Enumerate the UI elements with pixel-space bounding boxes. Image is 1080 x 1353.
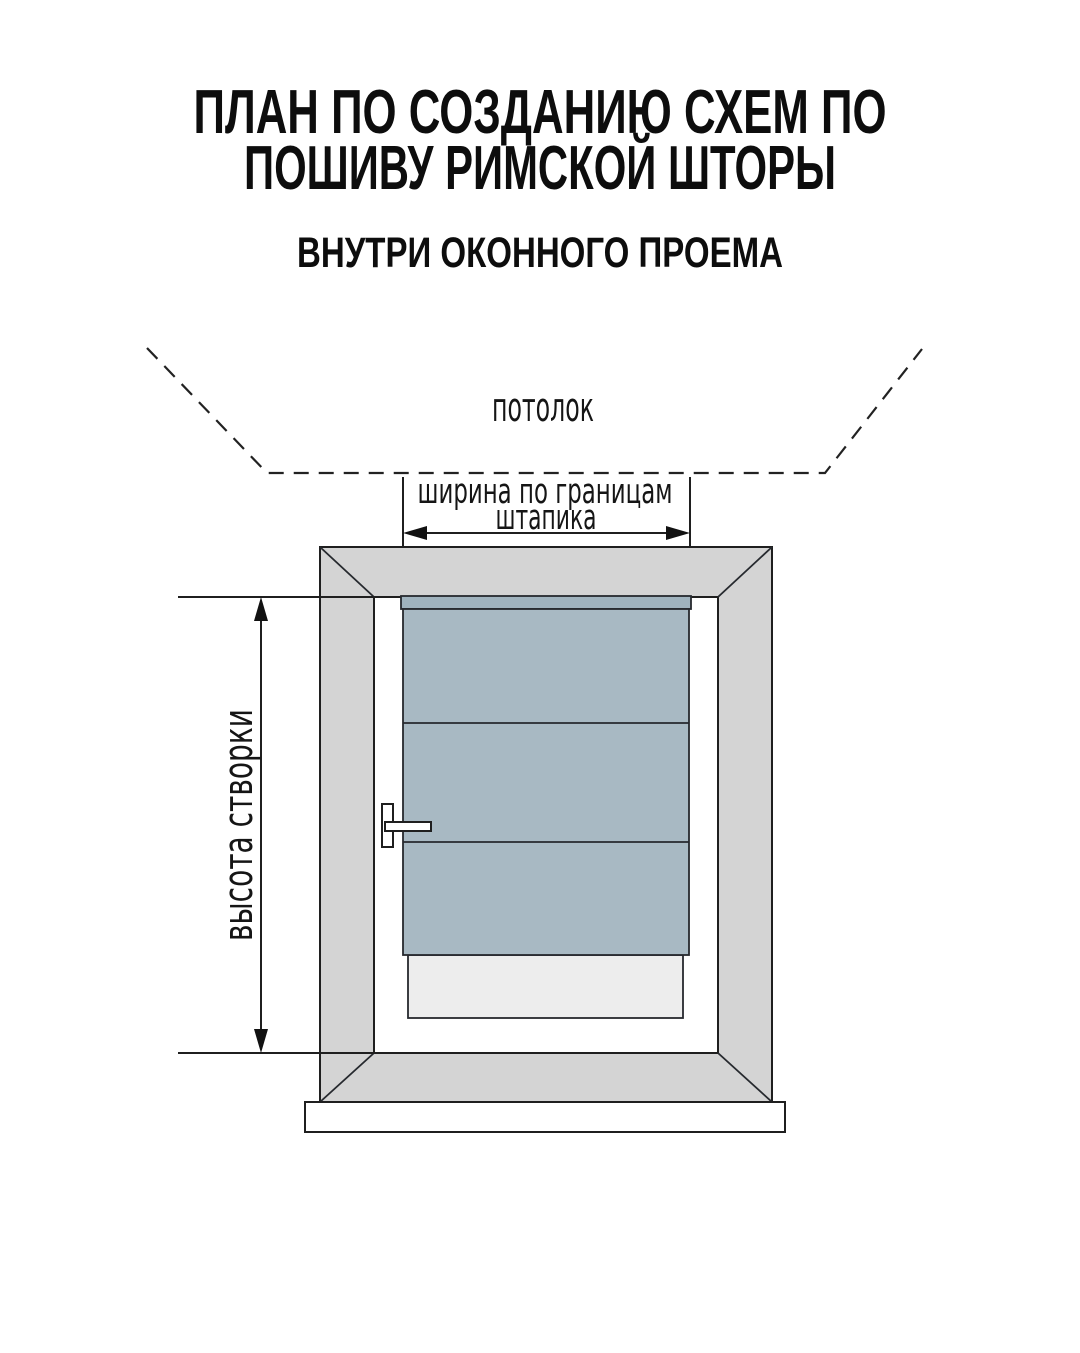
- shade-panel: [403, 609, 689, 955]
- height-dimension-label: высота створки: [216, 709, 262, 941]
- ceiling-label: потолок: [492, 385, 594, 431]
- page-title-line2: ПОШИВУ РИМСКОЙ ШТОРЫ: [244, 133, 836, 203]
- roman-shade: [401, 596, 691, 1018]
- windowsill: [305, 1102, 785, 1132]
- header: ПЛАН ПО СОЗДАНИЮ СХЕМ ПО ПОШИВУ РИМСКОЙ …: [194, 78, 887, 277]
- ceiling-indication: потолок: [147, 348, 922, 473]
- handle-lever: [385, 822, 431, 831]
- page-subtitle: ВНУТРИ ОКОННОГО ПРОЕМА: [297, 229, 783, 277]
- width-arrowhead-right: [666, 526, 690, 540]
- height-arrowhead-top: [254, 597, 268, 621]
- height-arrowhead-bottom: [254, 1029, 268, 1053]
- glass-below-shade: [408, 955, 683, 1018]
- width-arrowhead-left: [403, 526, 427, 540]
- shade-top-band: [401, 596, 691, 609]
- roman-shade-measurement-diagram: ПЛАН ПО СОЗДАНИЮ СХЕМ ПО ПОШИВУ РИМСКОЙ …: [0, 0, 1080, 1349]
